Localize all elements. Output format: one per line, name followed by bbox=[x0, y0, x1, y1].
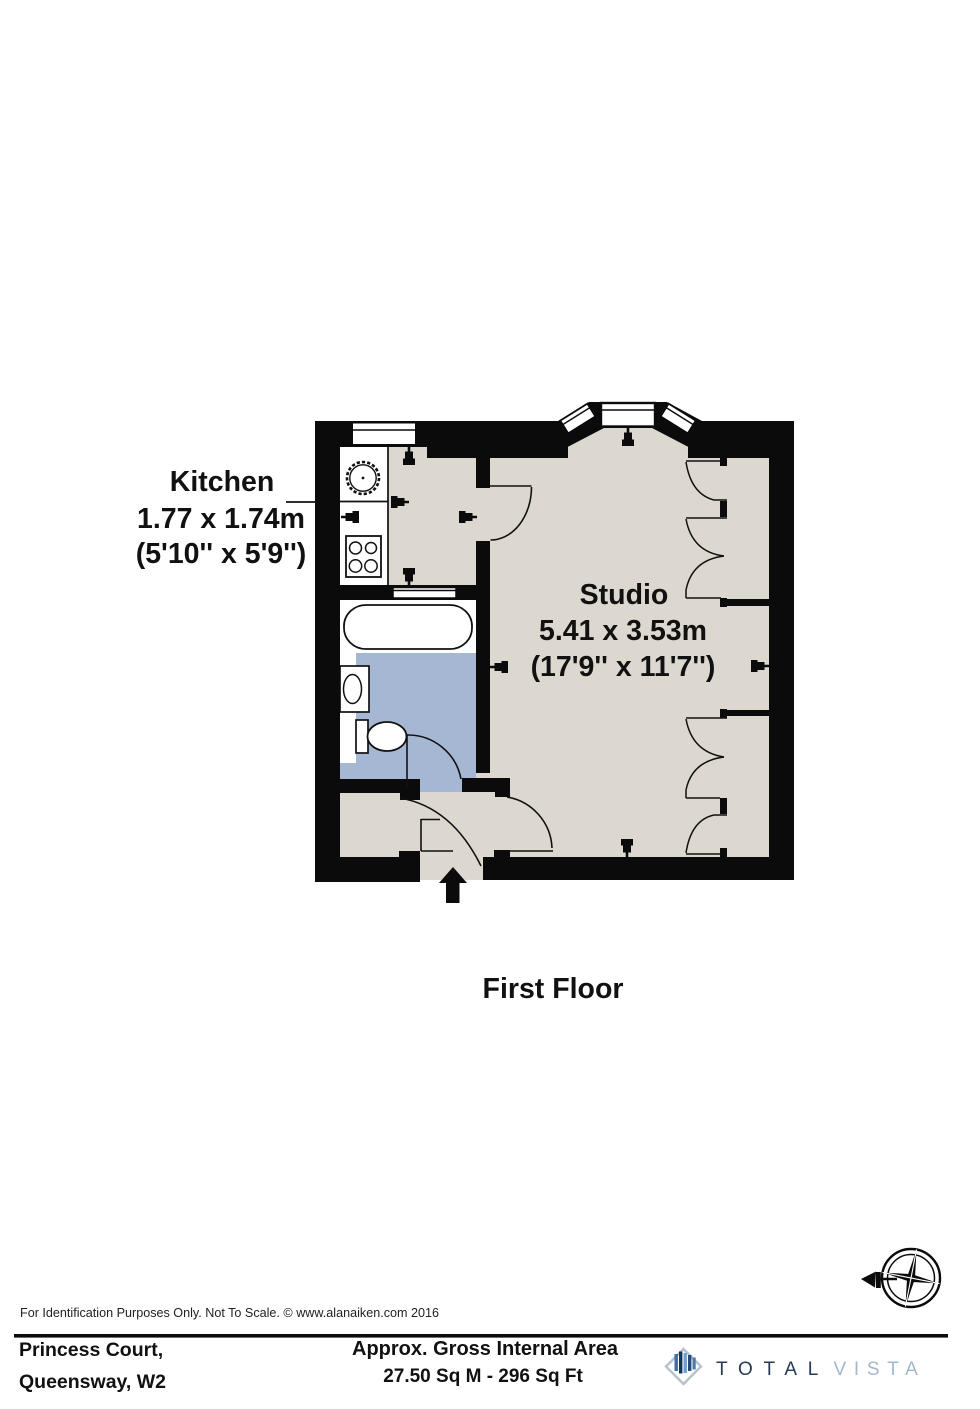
svg-text:5.41 x 3.53m: 5.41 x 3.53m bbox=[539, 615, 707, 647]
svg-text:VISTA: VISTA bbox=[834, 1359, 926, 1380]
svg-text:For Identification Purposes On: For Identification Purposes Only. Not To… bbox=[20, 1306, 439, 1320]
svg-text:Princess Court,: Princess Court, bbox=[19, 1339, 163, 1361]
svg-text:TOTAL: TOTAL bbox=[716, 1359, 829, 1380]
svg-text:Queensway, W2: Queensway, W2 bbox=[19, 1371, 166, 1393]
svg-text:Studio: Studio bbox=[580, 579, 669, 611]
svg-text:Kitchen: Kitchen bbox=[170, 466, 275, 498]
svg-text:Approx. Gross Internal Area: Approx. Gross Internal Area bbox=[352, 1338, 619, 1360]
svg-text:1.77 x 1.74m: 1.77 x 1.74m bbox=[137, 503, 305, 535]
svg-text:(17'9'' x 11'7''): (17'9'' x 11'7'') bbox=[531, 651, 716, 683]
svg-text:First Floor: First Floor bbox=[483, 973, 624, 1005]
svg-text:27.50 Sq M - 296 Sq Ft: 27.50 Sq M - 296 Sq Ft bbox=[383, 1366, 583, 1387]
svg-text:(5'10'' x 5'9''): (5'10'' x 5'9'') bbox=[136, 538, 307, 570]
